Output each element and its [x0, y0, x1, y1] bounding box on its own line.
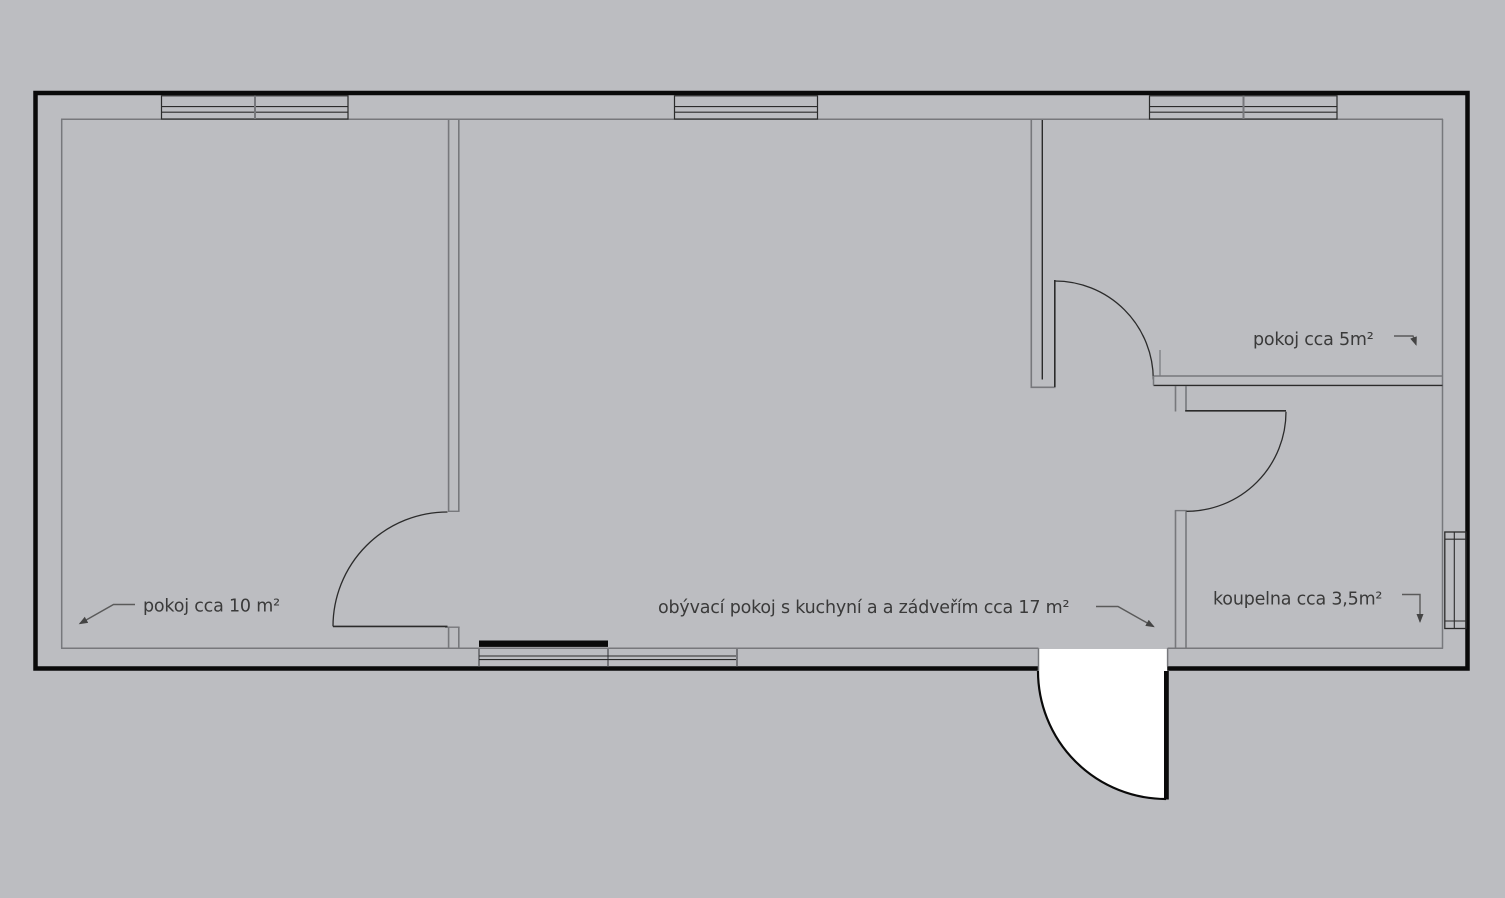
room-label-left: pokoj cca 10 m²	[143, 597, 280, 617]
room-label-living: obývací pokoj s kuchyní a a zádveřím cca…	[658, 598, 1069, 618]
room-label-bathroom: koupelna cca 3,5m²	[1213, 590, 1382, 610]
floor-plan-canvas: pokoj cca 10 m² obývací pokoj s kuchyní …	[0, 0, 1505, 898]
window-sill-bar	[479, 641, 608, 647]
entry-door-leaf	[1164, 671, 1169, 800]
room-label-small-room: pokoj cca 5m²	[1253, 330, 1374, 350]
entry-doorway-opening	[1039, 649, 1167, 672]
floor-plan-page: pokoj cca 10 m² obývací pokoj s kuchyní …	[0, 0, 1505, 898]
